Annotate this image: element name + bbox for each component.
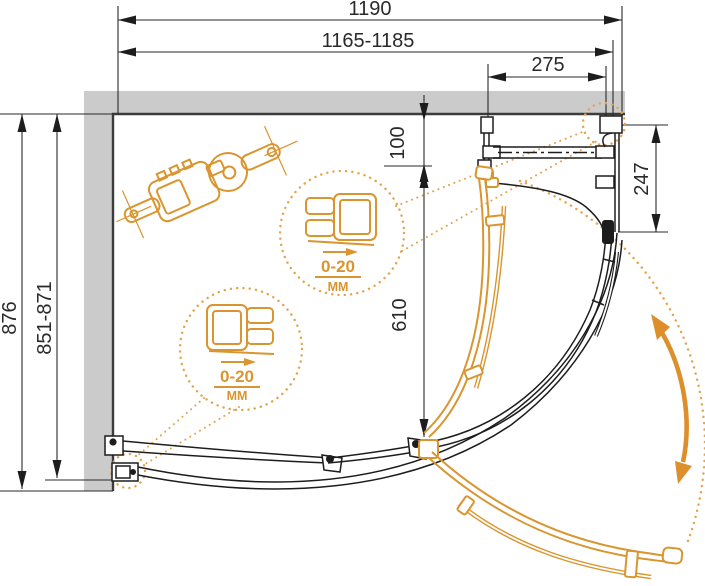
callout-leader-lines	[136, 131, 597, 466]
dim-label-width-adjust: 1165-1185	[322, 30, 415, 52]
track-rim-outer	[138, 233, 617, 482]
dim-label-right-panel: 247	[631, 162, 653, 195]
dim-label-wall-to-door: 100	[387, 126, 409, 159]
door-open-outward	[429, 452, 683, 577]
callout-upper-unit: ММ	[328, 280, 349, 294]
dim-depth-overall: 876	[0, 114, 27, 489]
callout-upper-value: 0-20	[321, 257, 355, 276]
dim-width-overall: 1190	[118, 0, 622, 25]
corner-wall-profile	[600, 116, 622, 133]
dim-wall-to-door: 100	[387, 95, 429, 437]
callout-lower-value: 0-20	[220, 367, 254, 386]
door-edge-cap-inward	[475, 166, 493, 180]
dim-right-panel: 247	[631, 125, 661, 232]
door-handle-closed	[596, 252, 617, 336]
dim-label-depth-adjust: 851-871	[34, 281, 56, 354]
adjust-arrow-lower	[244, 358, 256, 366]
profile-section-lower	[207, 305, 274, 354]
bottom-fixed-panel	[105, 233, 622, 489]
dim-top-panel: 275	[488, 54, 606, 82]
wall-face-line	[113, 114, 625, 491]
swing-arrow-head-up	[651, 314, 670, 340]
swing-arrow-head-down	[675, 461, 692, 484]
profile-section-upper	[306, 194, 376, 245]
dim-width-adjust: 1165-1185	[118, 30, 613, 57]
dim-label-width-overall: 1190	[348, 0, 391, 20]
dim-label-depth-overall: 876	[0, 301, 21, 334]
shower-enclosure-technical-drawing: 1190 1165-1185 275 876 851-871 247 100	[0, 0, 705, 586]
door-open-inward	[419, 166, 504, 458]
door-handle-outward	[459, 504, 651, 577]
dim-depth-adjust: 851-871	[34, 114, 62, 478]
tray-corner-curve	[493, 183, 605, 238]
dim-door-opening: 610	[389, 170, 429, 437]
hinge-mechanism-detail	[106, 116, 309, 246]
adjust-arrow-upper	[346, 248, 358, 256]
drawing-canvas: 1190 1165-1185 275 876 851-871 247 100	[0, 0, 705, 586]
callout-upper: 0-20 ММ	[280, 171, 404, 295]
door-edge-cap-outward	[662, 547, 682, 564]
dim-label-top-panel: 275	[531, 54, 564, 76]
dim-label-door-opening: 610	[389, 298, 411, 331]
callout-lower-unit: ММ	[227, 389, 248, 403]
door-swing-arrow	[651, 314, 692, 484]
callout-lower: 0-20 ММ	[180, 288, 302, 410]
